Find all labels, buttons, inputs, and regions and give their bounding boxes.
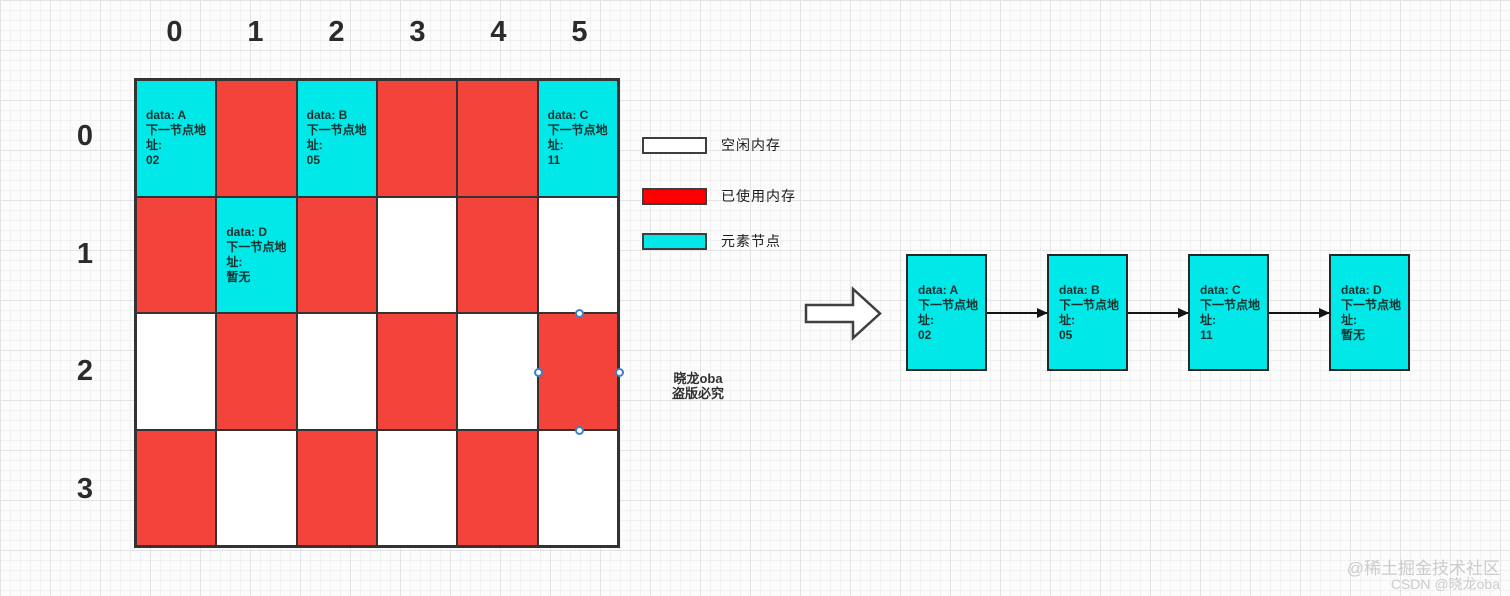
- memory-cell-r3c3-free: [377, 430, 457, 547]
- row-header-0: 0: [58, 78, 112, 196]
- legend-item-used: 已使用内存: [642, 187, 796, 205]
- diagram-canvas: 012345 0123 data: A下一节点地址:02data: B下一节点地…: [0, 0, 1510, 596]
- legend-item-node: 元素节点: [642, 232, 781, 250]
- memory-cell-text-line: 02: [146, 153, 212, 168]
- memory-cell-text-line: 址:: [226, 255, 292, 270]
- corner-watermark-line1: @稀土掘金技术社区: [1347, 560, 1500, 577]
- column-headers: 012345: [134, 16, 620, 56]
- legend-swatch-node: [642, 233, 707, 250]
- memory-cell-text-line: data: D: [226, 225, 292, 240]
- memory-cell-r3c1-free: [216, 430, 296, 547]
- linked-list-node-text-line: 暂无: [1341, 328, 1408, 343]
- memory-cell-text-line: 下一节点地: [548, 123, 614, 138]
- memory-cell-r2c5-used: [538, 313, 618, 430]
- linked-list-node-text-line: 下一节点地: [918, 298, 985, 313]
- linked-list-node-text-line: 11: [1200, 328, 1267, 343]
- selection-handle-top[interactable]: [575, 309, 584, 318]
- memory-cell-r1c1-node: data: D下一节点地址:暂无: [216, 197, 296, 314]
- memory-grid: data: A下一节点地址:02data: B下一节点地址:05data: C下…: [134, 78, 620, 548]
- column-header-5: 5: [539, 16, 620, 56]
- memory-cell-text-line: data: B: [307, 108, 373, 123]
- linked-list-node-2: data: C下一节点地址:11: [1188, 254, 1269, 371]
- memory-cell-r0c4-used: [457, 80, 537, 197]
- column-header-2: 2: [296, 16, 377, 56]
- column-header-0: 0: [134, 16, 215, 56]
- memory-cell-text-line: 暂无: [226, 270, 292, 285]
- legend-label-used: 已使用内存: [721, 186, 796, 206]
- memory-cell-r1c5-free: [538, 197, 618, 314]
- legend-swatch-used: [642, 188, 707, 205]
- memory-cell-r2c3-used: [377, 313, 457, 430]
- center-watermark-line2: 盗版必究: [628, 386, 768, 401]
- memory-cell-r0c2-node: data: B下一节点地址:05: [297, 80, 377, 197]
- corner-watermark-line2: CSDN @晓龙oba: [1347, 577, 1500, 591]
- row-header-1: 1: [58, 196, 112, 314]
- memory-cell-text-line: 05: [307, 153, 373, 168]
- memory-cell-text-line: 下一节点地: [307, 123, 373, 138]
- linked-list-node-text-line: 05: [1059, 328, 1126, 343]
- memory-cell-r1c0-used: [136, 197, 216, 314]
- memory-cell-r0c0-node: data: A下一节点地址:02: [136, 80, 216, 197]
- memory-cell-r2c0-free: [136, 313, 216, 430]
- selection-handle-left[interactable]: [534, 368, 543, 377]
- flow-arrow-icon: [800, 283, 886, 344]
- row-header-3: 3: [58, 431, 112, 549]
- memory-cell-text-line: 址:: [307, 138, 373, 153]
- center-watermark: 晓龙oba 盗版必究: [628, 371, 768, 401]
- memory-cell-r3c0-used: [136, 430, 216, 547]
- selection-handle-right[interactable]: [615, 368, 624, 377]
- memory-cell-r3c2-used: [297, 430, 377, 547]
- next-pointer-arrow-icon: [1269, 312, 1329, 314]
- memory-cell-text-line: data: A: [146, 108, 212, 123]
- linked-list-node-text-line: 址:: [1200, 313, 1267, 328]
- column-header-1: 1: [215, 16, 296, 56]
- memory-cell-r0c3-used: [377, 80, 457, 197]
- corner-watermark: @稀土掘金技术社区 CSDN @晓龙oba: [1347, 560, 1500, 591]
- linked-list-node-text-line: 址:: [1059, 313, 1126, 328]
- legend-label-free: 空闲内存: [721, 135, 781, 155]
- selection-handle-bottom[interactable]: [575, 426, 584, 435]
- memory-cell-r0c5-node: data: C下一节点地址:11: [538, 80, 618, 197]
- linked-list-node-text-line: 02: [918, 328, 985, 343]
- linked-list-node-text-line: data: B: [1059, 283, 1126, 298]
- memory-cell-text-line: 址:: [548, 138, 614, 153]
- linked-list: data: A下一节点地址:02data: B下一节点地址:05data: C下…: [906, 254, 1410, 371]
- row-headers: 0123: [58, 78, 112, 548]
- legend-item-free: 空闲内存: [642, 136, 781, 154]
- memory-cell-text-line: 11: [548, 153, 614, 168]
- legend-label-node: 元素节点: [721, 231, 781, 251]
- memory-cell-r0c1-used: [216, 80, 296, 197]
- memory-cell-text-line: 下一节点地: [226, 240, 292, 255]
- memory-cell-text-line: 址:: [146, 138, 212, 153]
- linked-list-node-text-line: 下一节点地: [1200, 298, 1267, 313]
- memory-cell-r3c4-used: [457, 430, 537, 547]
- next-pointer-arrow-icon: [987, 312, 1047, 314]
- linked-list-node-text-line: data: A: [918, 283, 985, 298]
- center-watermark-line1: 晓龙oba: [628, 371, 768, 386]
- memory-cell-r2c1-used: [216, 313, 296, 430]
- memory-cell-r1c3-free: [377, 197, 457, 314]
- memory-cell-text-line: 下一节点地: [146, 123, 212, 138]
- linked-list-node-1: data: B下一节点地址:05: [1047, 254, 1128, 371]
- legend-swatch-free: [642, 137, 707, 154]
- row-header-2: 2: [58, 313, 112, 431]
- linked-list-node-text-line: 下一节点地: [1341, 298, 1408, 313]
- column-header-3: 3: [377, 16, 458, 56]
- memory-cell-r2c4-free: [457, 313, 537, 430]
- linked-list-node-text-line: 址:: [918, 313, 985, 328]
- memory-cell-r1c4-used: [457, 197, 537, 314]
- memory-cell-text-line: data: C: [548, 108, 614, 123]
- linked-list-node-text-line: 址:: [1341, 313, 1408, 328]
- memory-cell-r1c2-used: [297, 197, 377, 314]
- linked-list-node-0: data: A下一节点地址:02: [906, 254, 987, 371]
- linked-list-node-text-line: data: D: [1341, 283, 1408, 298]
- memory-cell-r3c5-free: [538, 430, 618, 547]
- next-pointer-arrow-icon: [1128, 312, 1188, 314]
- column-header-4: 4: [458, 16, 539, 56]
- memory-cell-r2c2-free: [297, 313, 377, 430]
- linked-list-node-text-line: 下一节点地: [1059, 298, 1126, 313]
- linked-list-node-text-line: data: C: [1200, 283, 1267, 298]
- linked-list-node-3: data: D下一节点地址:暂无: [1329, 254, 1410, 371]
